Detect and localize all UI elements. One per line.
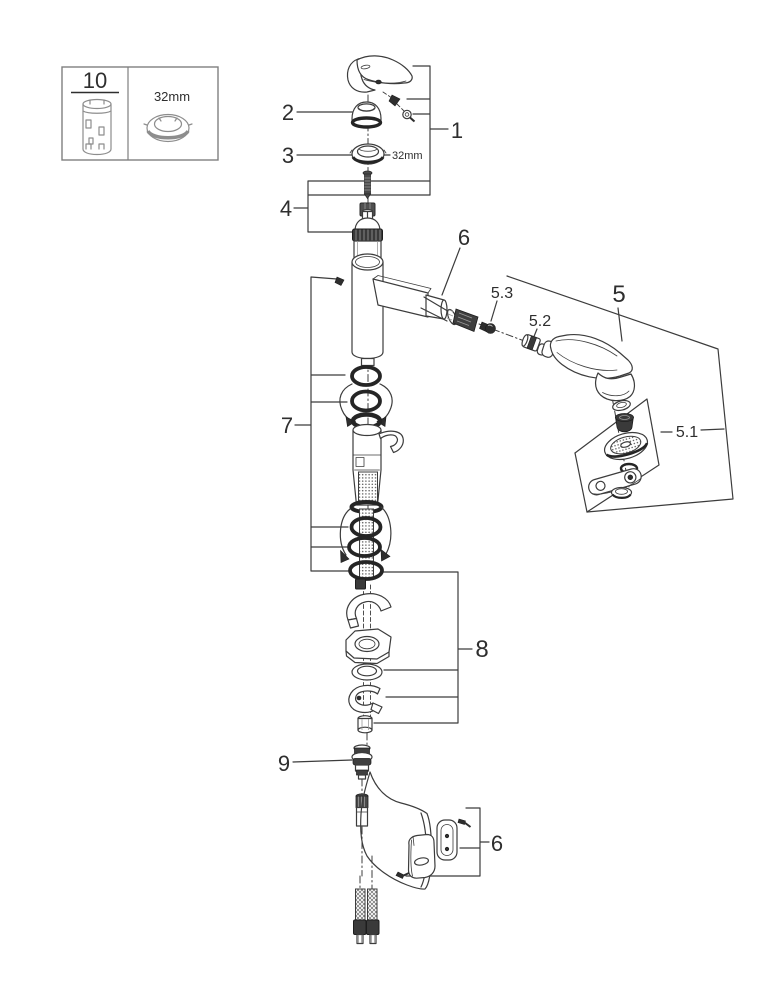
retaining-clip [379, 431, 403, 452]
hose-guide-clamp [409, 835, 436, 879]
callout-5-2: 5.2 [529, 313, 551, 330]
faucet-body [335, 254, 491, 366]
callout-7: 7 [281, 413, 293, 438]
lever-handle [347, 56, 412, 92]
callout-1: 1 [451, 118, 463, 143]
callout-8: 8 [475, 636, 488, 663]
center-axis-lines [360, 92, 629, 889]
oring-stack [340, 367, 403, 579]
hose-guide-detail [361, 772, 471, 889]
callout-4: 4 [280, 196, 292, 221]
callout-5-3: 5.3 [491, 285, 513, 302]
callout-3: 3 [282, 143, 294, 168]
handle-cap [352, 102, 381, 128]
body-set-screw [335, 277, 344, 286]
callout-5-1: 5.1 [676, 424, 698, 441]
callout-5: 5 [612, 281, 625, 308]
spray-insert [616, 414, 634, 432]
supply-hoses [354, 889, 380, 944]
hose-nipple [356, 794, 368, 826]
callout-6-guide: 6 [491, 831, 503, 856]
legend-tool-label: 10 [83, 68, 107, 93]
spray-head [536, 335, 634, 401]
mounting-hardware [346, 579, 391, 733]
exploded-parts-diagram-page: 10 32mm 1 2 3 32mm 4 6 5.3 5.2 5 5.1 7 8… [0, 0, 769, 1000]
callout-labels: 10 32mm 1 2 3 32mm 4 6 5.3 5.2 5 5.1 7 8… [83, 68, 698, 856]
horseshoe-spacer [347, 594, 391, 620]
bracket-screw-top [458, 819, 466, 825]
spray-face [601, 428, 650, 464]
ring-size-annotation: 32mm [392, 150, 423, 162]
spray-head-group [486, 324, 651, 498]
legend-wrench-size: 32mm [154, 89, 190, 104]
faucet-exploded-diagram: 10 32mm 1 2 3 32mm 4 6 5.3 5.2 5 5.1 7 8… [0, 0, 769, 1000]
callout-2: 2 [282, 100, 294, 125]
cartridge-screw [363, 171, 372, 199]
callout-6-spout: 6 [458, 225, 470, 250]
wall-bracket [437, 820, 457, 860]
ring-nut-32mm [350, 144, 386, 164]
callout-9: 9 [278, 751, 290, 776]
